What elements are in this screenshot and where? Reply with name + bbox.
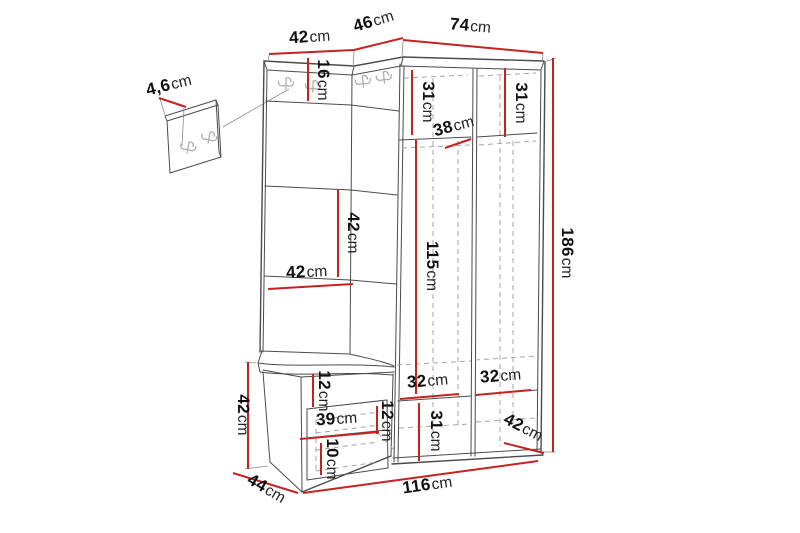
left-panel-column bbox=[260, 61, 399, 354]
coat-hook-icon bbox=[376, 71, 392, 84]
dimension-line-interior-depth bbox=[445, 139, 471, 148]
dimension-label-hook-panel-height: 16cm bbox=[314, 59, 333, 100]
seat-cushion-front-edge bbox=[258, 363, 394, 367]
dimension-label-bench-depth: 44cm bbox=[244, 470, 289, 507]
dimension-label-interior-depth: 38cm bbox=[431, 111, 476, 140]
dimension-label-interior-height: 115cm bbox=[423, 241, 442, 291]
dimension-label-right-section-width: 74cm bbox=[449, 14, 492, 37]
furniture-dimension-diagram: 42cm 46cm 74cm 4,6cm 16cm 31cm 31cm 38cm… bbox=[0, 0, 800, 533]
hallway-unit-drawing: 42cm 46cm 74cm 4,6cm 16cm 31cm 31cm 38cm… bbox=[0, 0, 800, 533]
coat-hook-icon bbox=[355, 75, 371, 88]
detail-pointer-line bbox=[223, 89, 289, 127]
dimension-label-top-section-width: 42cm bbox=[288, 26, 330, 48]
dimension-label-wall-panel-width: 42cm bbox=[286, 261, 328, 282]
dimension-label-bench-top-height: 12cm bbox=[315, 370, 334, 411]
dimension-line-lower-depth bbox=[504, 443, 544, 453]
coat-hook-icon bbox=[278, 77, 293, 89]
dimension-line-right-section-width bbox=[403, 40, 543, 53]
dimension-line-corner-section-width bbox=[354, 38, 403, 50]
dimension-label-corner-section-width: 46cm bbox=[351, 6, 396, 36]
dimension-line-panel-thickness bbox=[159, 98, 186, 107]
dimension-label-total-height: 186cm bbox=[558, 228, 577, 279]
dimension-label-wall-panel-height: 42cm bbox=[344, 212, 363, 253]
dimension-label-lower-depth: 42cm bbox=[501, 409, 546, 445]
dimension-label-lower-compartment-right: 32cm bbox=[479, 364, 522, 387]
dimension-line-lower-compartment-right bbox=[476, 390, 531, 395]
dimension-line-lower-compartment-left bbox=[400, 394, 459, 399]
dimension-label-lower-compartment-left: 32cm bbox=[406, 369, 449, 392]
dimension-label-upper-compartment-left: 31cm bbox=[419, 81, 438, 122]
dimension-label-bench-opening-height: 12cm bbox=[378, 400, 397, 441]
coat-hook-icon bbox=[201, 130, 218, 144]
dimension-label-bench-height: 42cm bbox=[234, 394, 253, 435]
dimension-labels: 42cm 46cm 74cm 4,6cm 16cm 31cm 31cm 38cm… bbox=[144, 6, 577, 507]
top-shelf-right bbox=[477, 133, 537, 137]
dimension-label-upper-compartment-right: 31cm bbox=[512, 82, 531, 123]
dimension-label-bench-opening-width: 39cm bbox=[315, 408, 357, 430]
dimension-label-lower-compartment-height: 31cm bbox=[427, 410, 446, 451]
dimension-label-bench-base-height: 10cm bbox=[323, 438, 342, 479]
leader-lines bbox=[245, 41, 556, 469]
dimension-line-top-section-width bbox=[269, 50, 354, 54]
dimension-line-wall-panel-width bbox=[268, 284, 353, 289]
dimension-label-panel-thickness: 4,6cm bbox=[144, 70, 193, 100]
dimension-label-total-width: 116cm bbox=[401, 472, 453, 498]
